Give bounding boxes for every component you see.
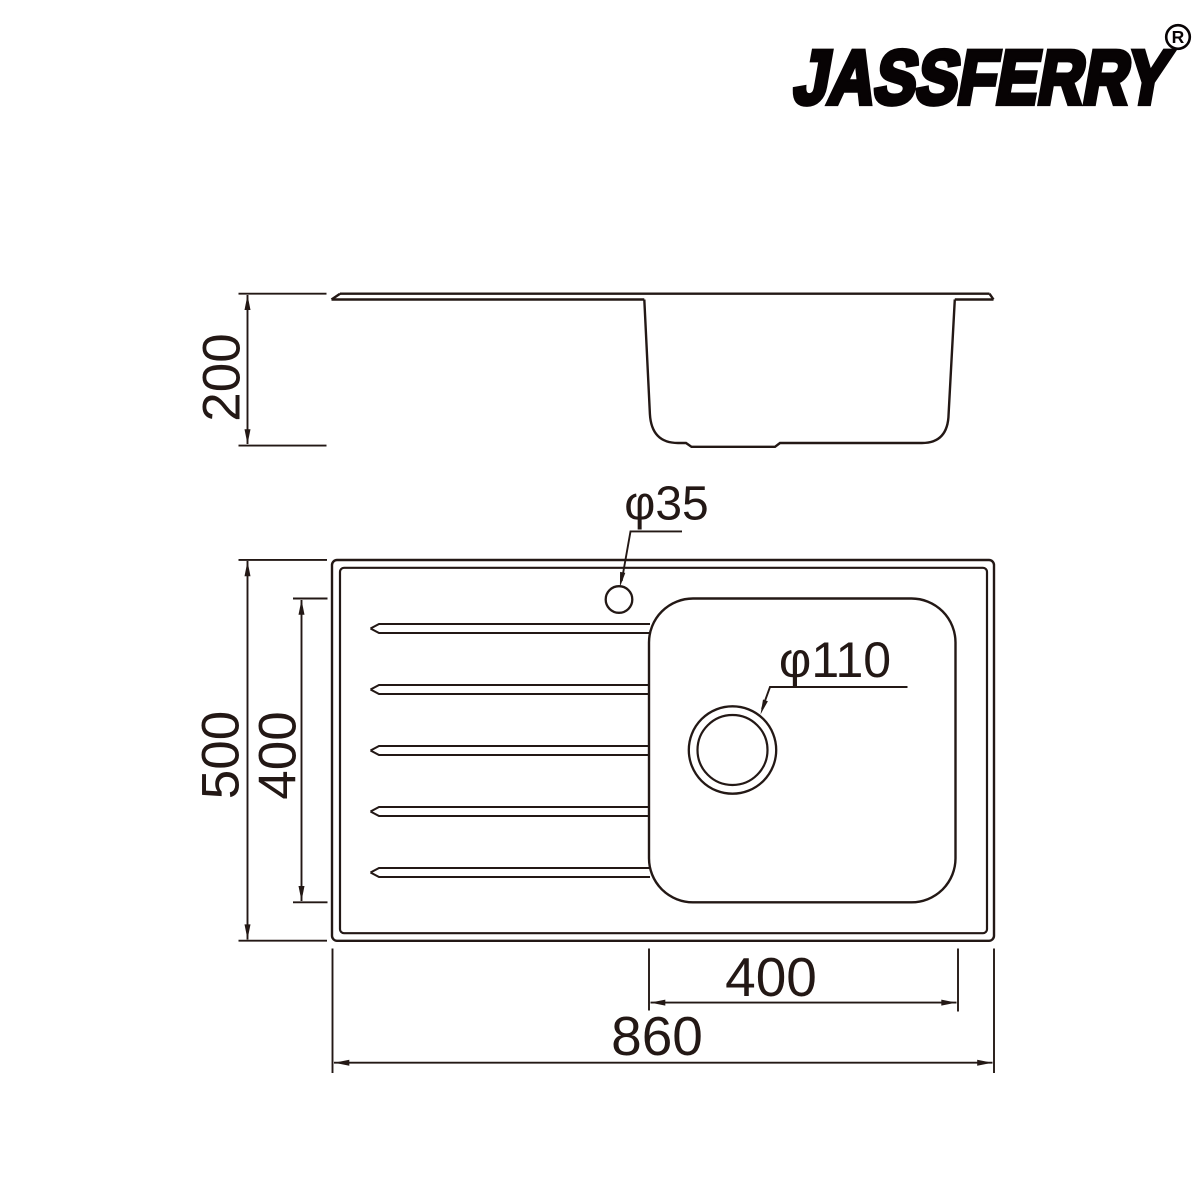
svg-text:φ35: φ35 xyxy=(624,478,709,531)
svg-text:200: 200 xyxy=(193,333,252,421)
svg-text:400: 400 xyxy=(249,711,308,799)
svg-text:R: R xyxy=(1172,27,1185,47)
svg-text:φ110: φ110 xyxy=(779,632,891,688)
svg-text:JASSFERRY: JASSFERRY xyxy=(789,36,1178,120)
svg-text:860: 860 xyxy=(611,1005,703,1067)
svg-text:500: 500 xyxy=(192,711,251,799)
svg-text:400: 400 xyxy=(725,946,817,1008)
